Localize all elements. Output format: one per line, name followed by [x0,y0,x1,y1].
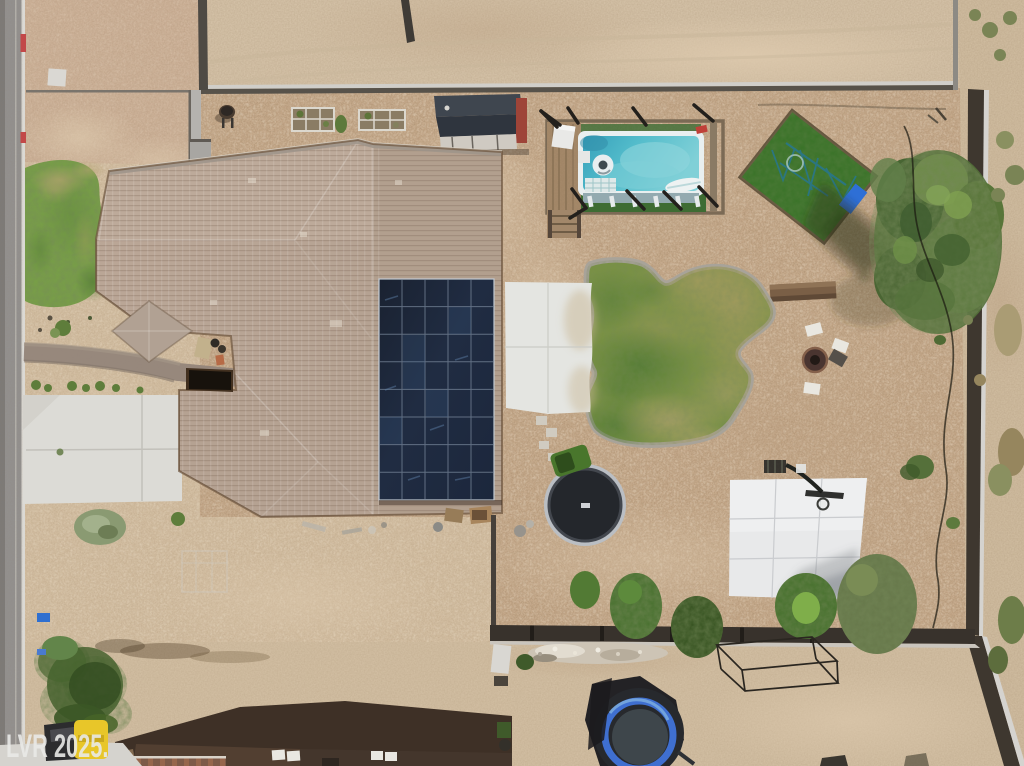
svg-text:LVR 2025.: LVR 2025. [6,728,108,764]
